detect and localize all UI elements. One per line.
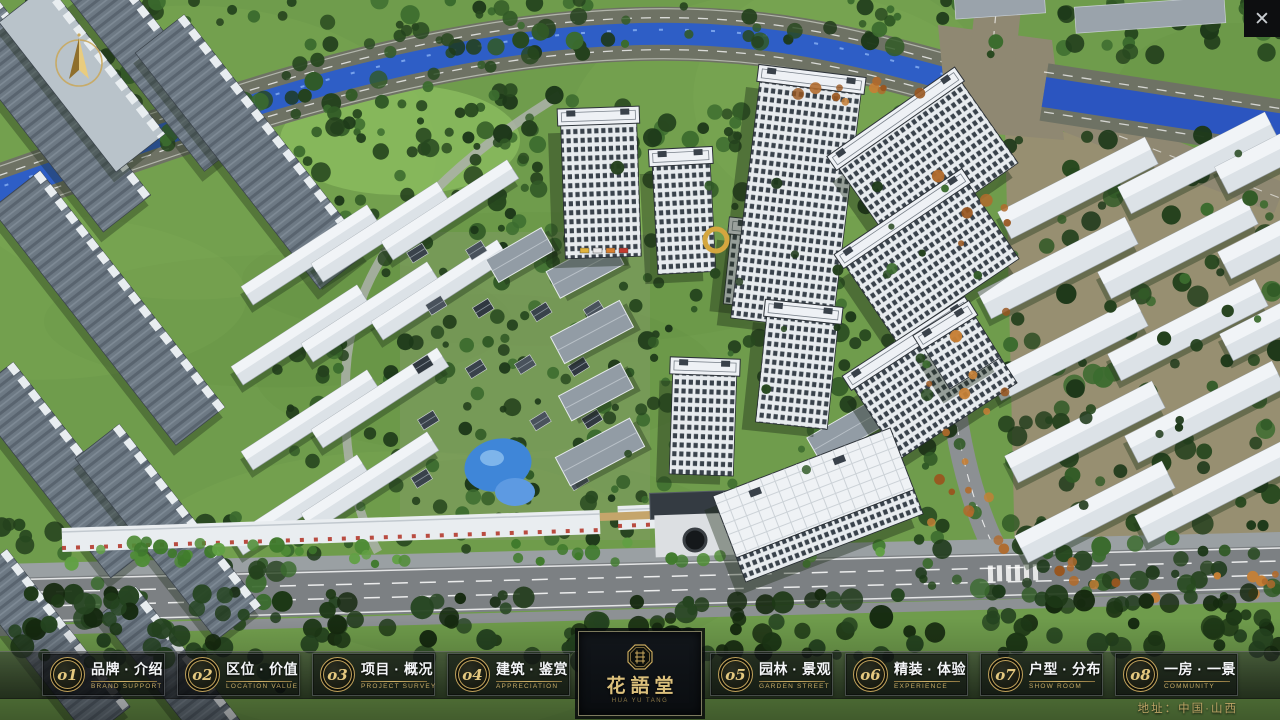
nav-item-label-en: APPRECIATION	[496, 683, 562, 690]
brand-logo-panel: 花語堂 HUA YU TANG	[578, 631, 702, 716]
nav-item-8[interactable]: o8一房 · 一景COMMUNITY	[1115, 653, 1238, 696]
brand-seal-icon	[627, 644, 653, 675]
nav-item-rule	[759, 681, 825, 682]
nav-item-badge: o2	[185, 657, 220, 692]
presentation-window: ✕ o1品牌 · 介绍BRAND SUPPORTo2区位 · 价值LOCATIO…	[0, 0, 1280, 720]
nav-item-badge: o8	[1123, 657, 1158, 692]
nav-item-5[interactable]: o5园林 · 景观GARDEN STREET	[710, 653, 833, 696]
nav-item-label-zh: 精装 · 体验	[894, 659, 960, 679]
nav-item-label-zh: 区位 · 价值	[226, 659, 292, 679]
nav-item-label-en: GARDEN STREET	[759, 683, 825, 690]
brand-name: 花語堂	[601, 677, 678, 696]
nav-item-label-zh: 项目 · 概况	[361, 659, 427, 679]
nav-item-label-zh: 户型 · 分布	[1029, 659, 1095, 679]
nav-item-6[interactable]: o6精装 · 体验EXPERIENCE	[845, 653, 968, 696]
nav-item-label-en: PROJECT SURVEY	[361, 683, 427, 690]
project-address: 地址：中国·山西	[1138, 700, 1238, 716]
nav-item-rule	[894, 681, 960, 682]
nav-item-rule	[361, 681, 427, 682]
nav-item-badge: o4	[455, 657, 490, 692]
nav-item-badge: o1	[50, 657, 85, 692]
nav-item-label-en: EXPERIENCE	[894, 683, 960, 690]
nav-item-rule	[1029, 681, 1095, 682]
nav-item-badge: o7	[988, 657, 1023, 692]
nav-item-7[interactable]: o7户型 · 分布SHOW ROOM	[980, 653, 1103, 696]
nav-item-3[interactable]: o3项目 · 概况PROJECT SURVEY	[312, 653, 435, 696]
nav-item-badge: o6	[853, 657, 888, 692]
nav-item-2[interactable]: o2区位 · 价值LOCATION VALUE	[177, 653, 300, 696]
nav-item-label-zh: 园林 · 景观	[759, 659, 825, 679]
nav-item-rule	[1164, 681, 1230, 682]
brand-caption: HUA YU TANG	[612, 698, 669, 704]
nav-item-rule	[91, 681, 157, 682]
nav-item-label-zh: 建筑 · 鉴赏	[496, 659, 562, 679]
nav-item-label-en: BRAND SUPPORT	[91, 683, 157, 690]
map-viewport[interactable]	[0, 0, 1280, 720]
nav-item-badge: o3	[320, 657, 355, 692]
nav-item-4[interactable]: o4建筑 · 鉴赏APPRECIATION	[447, 653, 570, 696]
nav-item-label-en: COMMUNITY	[1164, 683, 1230, 690]
nav-item-label-zh: 一房 · 一景	[1164, 659, 1230, 679]
map-render	[0, 0, 1280, 720]
nav-item-badge: o5	[718, 657, 753, 692]
nav-item-label-en: SHOW ROOM	[1029, 683, 1095, 690]
nav-item-label-en: LOCATION VALUE	[226, 683, 292, 690]
nav-item-rule	[226, 681, 292, 682]
close-button[interactable]: ✕	[1244, 0, 1280, 37]
nav-item-rule	[496, 681, 562, 682]
nav-item-label-zh: 品牌 · 介绍	[91, 659, 157, 679]
nav-item-1[interactable]: o1品牌 · 介绍BRAND SUPPORT	[42, 653, 165, 696]
